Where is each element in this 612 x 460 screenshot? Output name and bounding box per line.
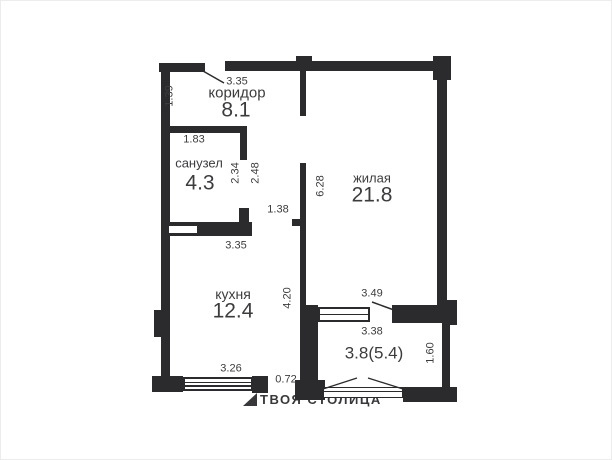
balcony-door-swing-line <box>372 302 394 310</box>
dim-hall-depth: 1.39 <box>165 85 176 106</box>
door-lines-layer <box>0 0 612 460</box>
dim-balcony-opening: 3.49 <box>361 289 382 300</box>
balcony-bay-line-left <box>323 378 357 389</box>
dim-passage-depth: 2.48 <box>251 162 262 183</box>
room-area-living: 21.8 <box>352 185 393 206</box>
dim-passage-width: 1.38 <box>267 205 288 216</box>
entrance-door-swing-line <box>203 71 224 83</box>
dim-balcony-depth: 1.60 <box>426 342 437 363</box>
room-label-bathroom: санузел <box>175 157 223 170</box>
floorplan-canvas: ТВОЯ СТОЛИЦА коридор 8.1 санузел 4.3 <box>0 0 612 460</box>
room-area-bathroom: 4.3 <box>185 173 214 194</box>
dim-kitchen-door: 0.72 <box>275 375 296 386</box>
dim-bath-depth: 2.34 <box>231 162 242 183</box>
dim-kitchen-width-top: 3.35 <box>225 241 246 252</box>
dim-bath-width: 1.83 <box>183 135 204 146</box>
dim-hall-width: 3.35 <box>226 77 247 88</box>
dim-kitchen-width-bottom: 3.26 <box>220 364 241 375</box>
room-area-balcony: 3.8(5.4) <box>345 345 404 362</box>
dim-living-depth: 6.28 <box>316 175 327 196</box>
balcony-bay-line-right <box>368 378 403 389</box>
room-area-kitchen: 12.4 <box>213 301 254 322</box>
dim-balcony-width: 3.38 <box>361 327 382 338</box>
room-area-corridor: 8.1 <box>221 100 250 121</box>
dim-kitchen-depth: 4.20 <box>283 287 294 308</box>
